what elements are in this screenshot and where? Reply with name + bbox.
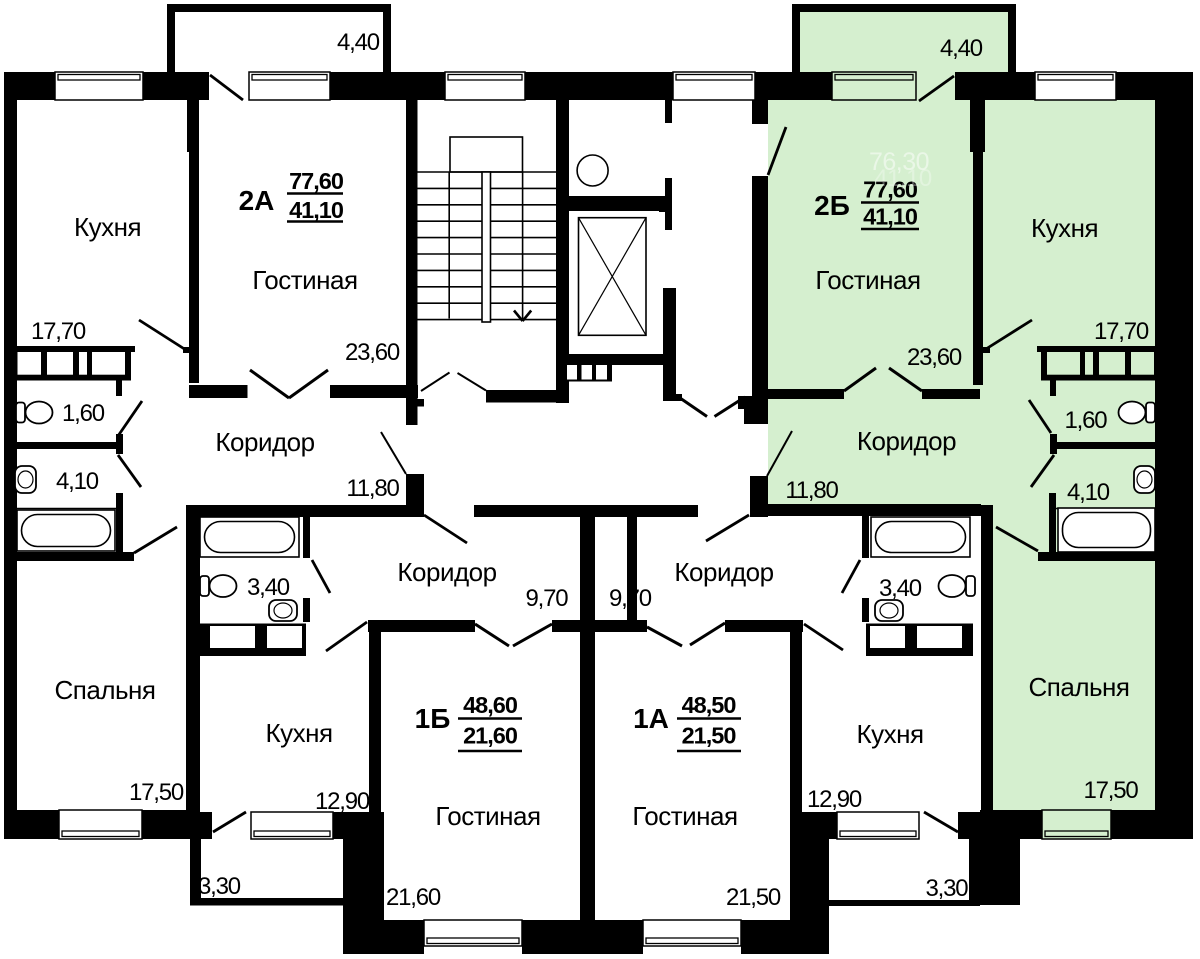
svg-text:12,90: 12,90 xyxy=(807,786,862,813)
svg-text:41,10: 41,10 xyxy=(289,197,344,223)
svg-text:4,10: 4,10 xyxy=(56,468,99,495)
svg-text:2Б: 2Б xyxy=(814,190,850,221)
svg-text:3,40: 3,40 xyxy=(247,574,290,601)
svg-text:1Б: 1Б xyxy=(415,703,451,734)
svg-text:11,80: 11,80 xyxy=(785,477,838,504)
svg-text:17,70: 17,70 xyxy=(31,318,86,345)
svg-text:Кухня: Кухня xyxy=(1031,213,1098,243)
svg-text:Кухня: Кухня xyxy=(856,719,923,749)
svg-text:Гостиная: Гостиная xyxy=(252,265,357,295)
svg-text:Кухня: Кухня xyxy=(265,718,332,748)
svg-text:4,10: 4,10 xyxy=(1067,479,1110,506)
svg-text:3,30: 3,30 xyxy=(926,875,969,902)
svg-text:23,60: 23,60 xyxy=(907,344,962,371)
svg-text:21,60: 21,60 xyxy=(463,723,518,749)
svg-text:21,50: 21,50 xyxy=(682,723,737,749)
svg-text:11,80: 11,80 xyxy=(346,475,399,502)
svg-text:Коридор: Коридор xyxy=(674,557,773,587)
svg-text:48,60: 48,60 xyxy=(463,692,518,718)
svg-text:21,50: 21,50 xyxy=(726,884,781,911)
svg-text:48,50: 48,50 xyxy=(682,692,737,718)
svg-text:Спальня: Спальня xyxy=(1029,672,1130,702)
svg-text:17,50: 17,50 xyxy=(129,779,184,806)
svg-text:17,70: 17,70 xyxy=(1094,318,1149,345)
svg-text:Коридор: Коридор xyxy=(857,426,956,456)
svg-text:3,40: 3,40 xyxy=(879,575,922,602)
svg-text:21,60: 21,60 xyxy=(386,884,441,911)
svg-text:Коридор: Коридор xyxy=(215,427,314,457)
svg-text:Коридор: Коридор xyxy=(397,557,496,587)
svg-text:Гостиная: Гостиная xyxy=(435,801,540,831)
svg-text:2А: 2А xyxy=(239,185,275,216)
svg-text:1,60: 1,60 xyxy=(1065,407,1108,434)
svg-text:Гостиная: Гостиная xyxy=(632,801,737,831)
svg-text:41,10: 41,10 xyxy=(863,204,918,230)
svg-text:9,70: 9,70 xyxy=(609,585,652,612)
svg-text:3,30: 3,30 xyxy=(198,873,241,900)
svg-text:77,60: 77,60 xyxy=(289,168,344,194)
svg-text:Спальня: Спальня xyxy=(55,675,156,705)
svg-text:1А: 1А xyxy=(633,703,669,734)
svg-text:23,60: 23,60 xyxy=(345,339,400,366)
svg-text:4,40: 4,40 xyxy=(337,29,380,56)
svg-text:1,60: 1,60 xyxy=(62,400,105,427)
svg-text:4,40: 4,40 xyxy=(940,35,983,62)
svg-text:Кухня: Кухня xyxy=(74,212,141,242)
svg-text:12,90: 12,90 xyxy=(315,788,370,815)
svg-text:41,10: 41,10 xyxy=(874,165,932,192)
svg-text:Гостиная: Гостиная xyxy=(815,265,920,295)
svg-text:9,70: 9,70 xyxy=(526,585,569,612)
svg-text:17,50: 17,50 xyxy=(1083,777,1138,804)
